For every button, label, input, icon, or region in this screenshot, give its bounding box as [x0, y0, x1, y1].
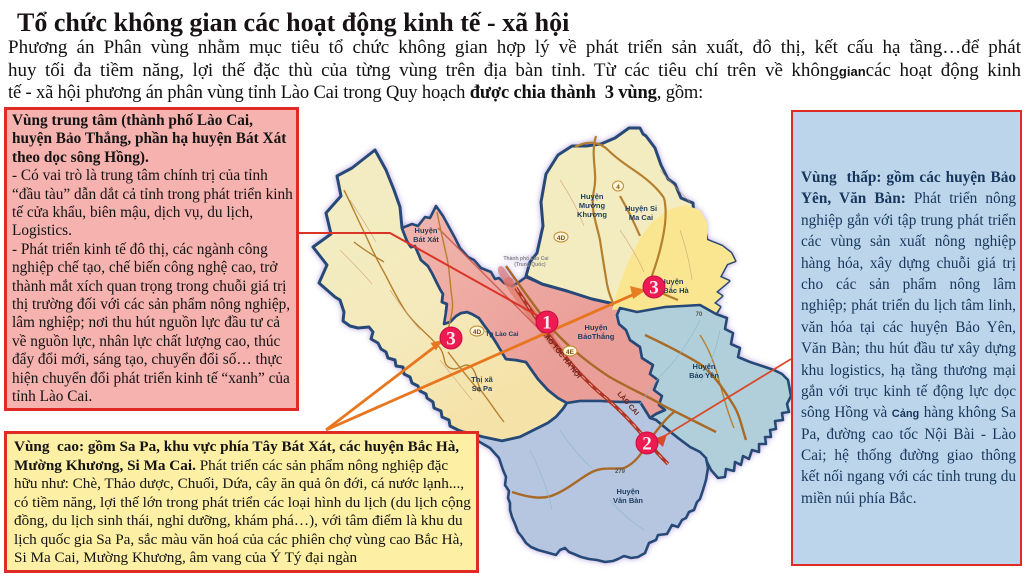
svg-text:Huyện: Huyện	[617, 487, 640, 496]
svg-text:70: 70	[696, 312, 703, 318]
svg-text:Mường: Mường	[579, 201, 606, 210]
svg-text:Thị xã: Thị xã	[471, 375, 494, 384]
svg-text:Sa Pa: Sa Pa	[472, 384, 493, 393]
svg-text:Bát Xát: Bát Xát	[413, 235, 439, 244]
svg-text:Thành phố Lào Cai: Thành phố Lào Cai	[504, 255, 550, 262]
svg-text:BảoThắng: BảoThắng	[578, 332, 615, 341]
svg-text:3: 3	[446, 329, 456, 350]
svg-text:Ma Cai: Ma Cai	[629, 213, 653, 222]
svg-text:2: 2	[642, 434, 652, 455]
svg-text:4E: 4E	[566, 349, 575, 356]
svg-text:4: 4	[616, 184, 620, 191]
svg-text:Huyện: Huyện	[581, 192, 604, 201]
svg-text:Bắc Hà: Bắc Hà	[663, 286, 689, 295]
svg-text:(Trung Quốc): (Trung Quốc)	[514, 261, 546, 268]
svg-text:Huyện: Huyện	[585, 323, 608, 332]
svg-text:3: 3	[649, 278, 659, 299]
svg-text:4D: 4D	[557, 235, 566, 242]
svg-text:4D: 4D	[473, 329, 482, 336]
svg-text:Khương: Khương	[577, 210, 607, 219]
svg-text:279: 279	[615, 469, 626, 475]
svg-text:Huyện: Huyện	[415, 226, 438, 235]
svg-text:Tp Lào Cai: Tp Lào Cai	[485, 331, 518, 338]
svg-text:Bảo Yên: Bảo Yên	[689, 371, 719, 380]
svg-text:Văn Bàn: Văn Bàn	[613, 496, 643, 505]
svg-text:Huyện: Huyện	[693, 362, 716, 371]
svg-text:Huyện Si: Huyện Si	[625, 204, 657, 213]
svg-text:1: 1	[542, 313, 552, 334]
